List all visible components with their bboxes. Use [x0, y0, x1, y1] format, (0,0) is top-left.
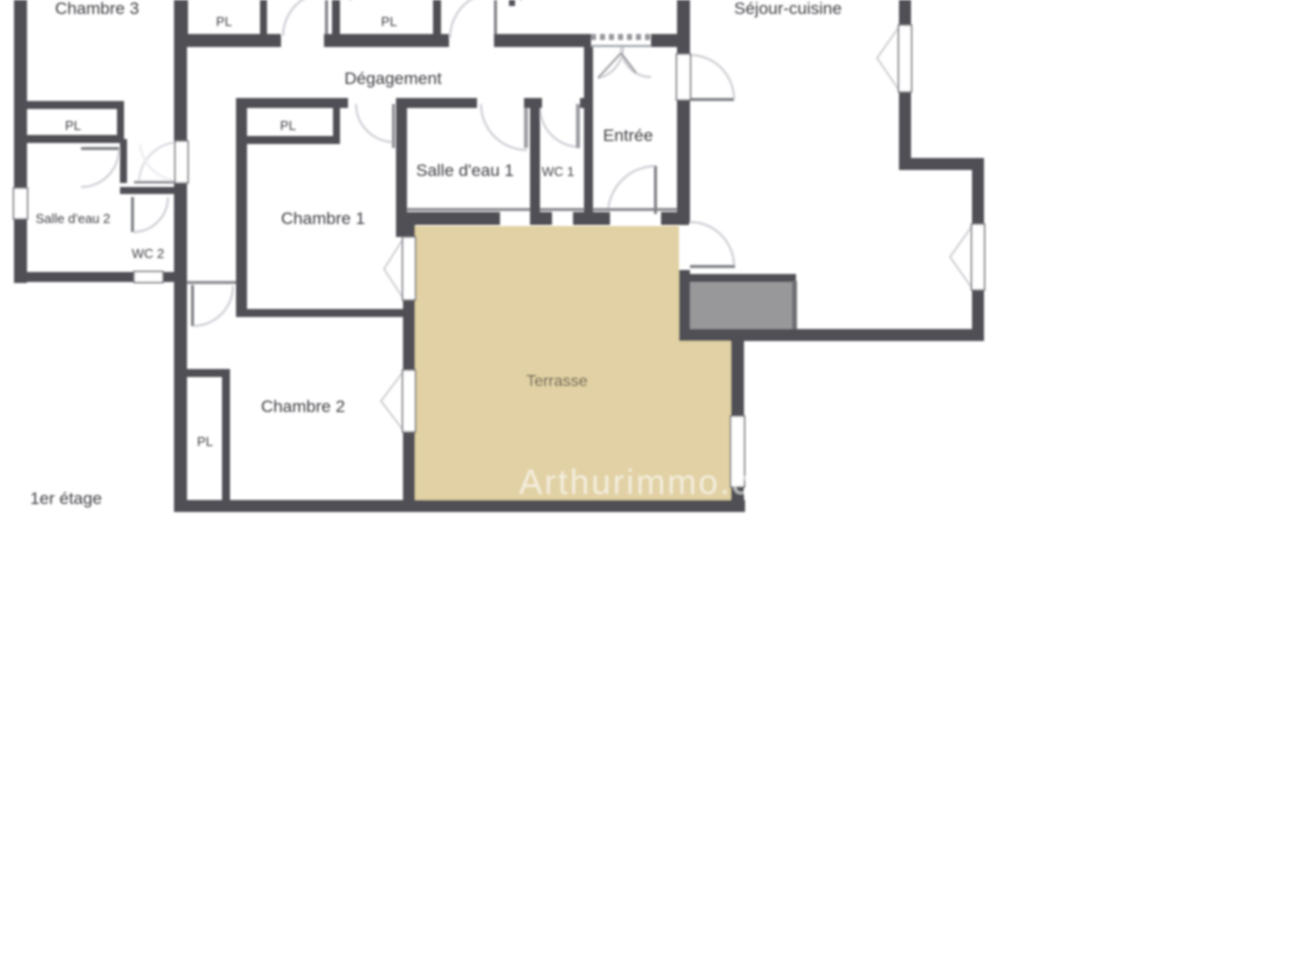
- svg-text:Salle d'eau 1: Salle d'eau 1: [416, 161, 514, 180]
- svg-text:Séjour-cuisine: Séjour-cuisine: [734, 0, 842, 18]
- svg-text:PL: PL: [65, 118, 81, 133]
- svg-text:Terrasse: Terrasse: [526, 373, 587, 390]
- svg-text:Chambre 2: Chambre 2: [261, 397, 345, 416]
- svg-text:Entrée: Entrée: [603, 126, 653, 145]
- svg-text:1er étage: 1er étage: [30, 489, 102, 508]
- svg-text:WC 1: WC 1: [542, 164, 575, 179]
- svg-text:Salle d'eau 2: Salle d'eau 2: [36, 211, 111, 226]
- svg-text:Dégagement: Dégagement: [344, 69, 442, 88]
- svg-text:Chambre 1: Chambre 1: [281, 209, 365, 228]
- svg-text:WC 2: WC 2: [132, 246, 165, 261]
- svg-text:PL: PL: [381, 14, 397, 29]
- svg-text:PL: PL: [197, 434, 213, 449]
- svg-text:Chambre 3: Chambre 3: [55, 0, 139, 18]
- svg-text:Arthurimmo.c: Arthurimmo.c: [519, 463, 751, 502]
- svg-text:PL: PL: [216, 14, 232, 29]
- svg-text:PL: PL: [280, 118, 296, 133]
